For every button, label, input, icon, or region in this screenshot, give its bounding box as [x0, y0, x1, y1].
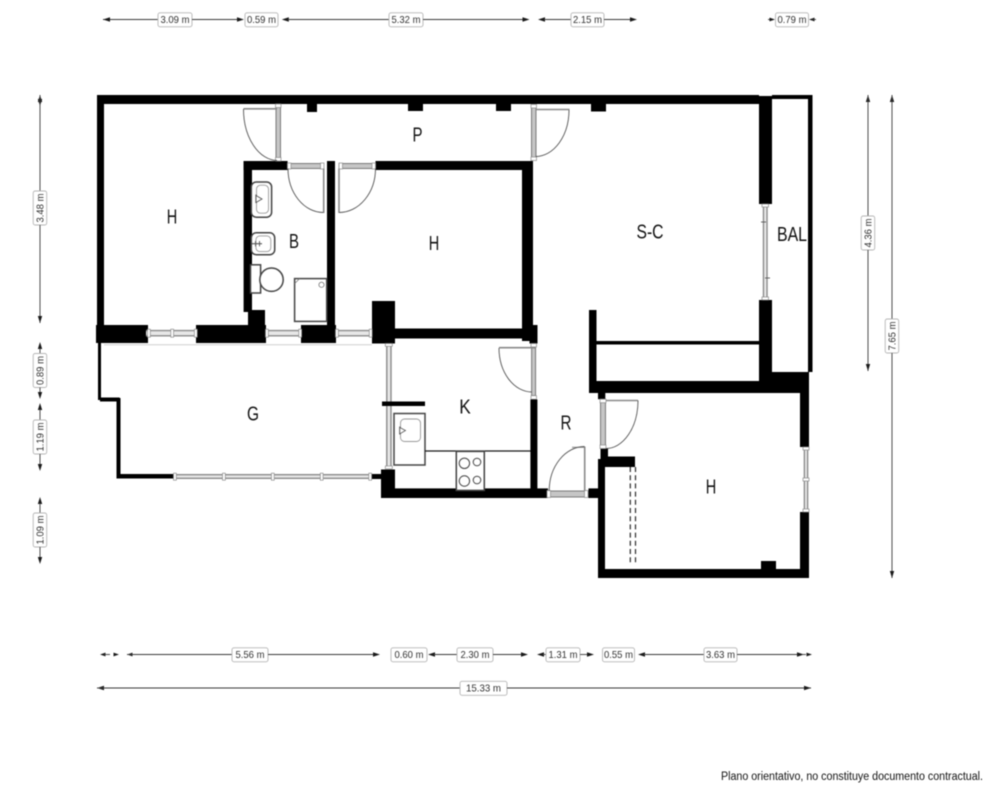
svg-text:5.56 m: 5.56 m: [236, 649, 265, 661]
svg-text:2.30 m: 2.30 m: [461, 649, 490, 661]
svg-text:1.19 m: 1.19 m: [35, 422, 47, 451]
svg-text:0.79 m: 0.79 m: [778, 14, 807, 26]
svg-text:4.36 m: 4.36 m: [863, 218, 875, 247]
svg-text:H: H: [429, 233, 440, 255]
svg-text:0.60 m: 0.60 m: [395, 649, 424, 661]
svg-text:S-C: S-C: [637, 222, 664, 244]
svg-text:BAL: BAL: [777, 224, 807, 246]
svg-text:3.48 m: 3.48 m: [35, 193, 47, 222]
svg-text:1.09 m: 1.09 m: [35, 515, 47, 544]
svg-text:P: P: [413, 125, 423, 147]
svg-text:B: B: [289, 231, 299, 253]
svg-text:0.89 m: 0.89 m: [35, 356, 47, 385]
svg-text:3.63 m: 3.63 m: [706, 649, 735, 661]
svg-text:15.33 m: 15.33 m: [466, 683, 501, 695]
svg-text:0.59 m: 0.59 m: [247, 14, 276, 26]
svg-text:0.55 m: 0.55 m: [604, 649, 633, 661]
svg-text:1.31 m: 1.31 m: [549, 649, 578, 661]
svg-text:Plano orientativo, no constitu: Plano orientativo, no constituye documen…: [721, 771, 983, 783]
svg-text:R: R: [561, 413, 572, 435]
svg-text:H: H: [706, 477, 717, 499]
svg-text:G: G: [247, 404, 259, 426]
svg-text:3.09 m: 3.09 m: [161, 14, 190, 26]
svg-text:K: K: [459, 397, 471, 419]
svg-text:2.15 m: 2.15 m: [573, 14, 602, 26]
svg-text:5.32 m: 5.32 m: [392, 14, 421, 26]
svg-text:7.65 m: 7.65 m: [887, 321, 899, 350]
svg-text:H: H: [167, 207, 178, 229]
